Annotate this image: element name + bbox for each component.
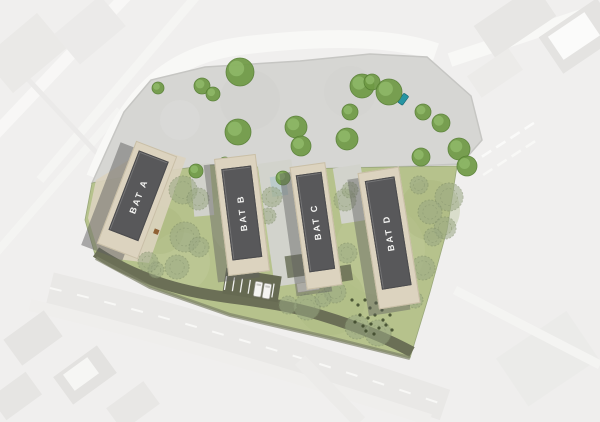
sketch-tree-icon (165, 255, 189, 279)
tree-icon (287, 118, 299, 130)
shrub-icon (356, 303, 359, 306)
sketch-tree-icon (138, 252, 158, 272)
building-label: BAT A (127, 177, 149, 215)
tree-icon (338, 130, 350, 142)
tree-icon (190, 165, 198, 173)
sketch-tree-icon (342, 182, 358, 198)
sketch-tree-icon (279, 296, 297, 314)
shrub-icon (363, 298, 366, 301)
shrub-icon (372, 332, 375, 335)
tree-icon (344, 106, 353, 115)
shrub-icon (390, 328, 393, 331)
building-label: BAT B (235, 194, 249, 232)
shrub-icon (361, 324, 364, 327)
shrub-icon (369, 322, 372, 325)
shrub-icon (377, 326, 380, 329)
shrub-icon (364, 329, 367, 332)
shrub-icon (368, 306, 371, 309)
shrub-icon (381, 318, 384, 321)
tree-icon (196, 80, 205, 89)
shrub-icon (388, 313, 391, 316)
tree-icon (153, 83, 160, 90)
tree-icon (459, 158, 470, 169)
tree-icon (434, 116, 444, 126)
building-label: BAT D (380, 214, 396, 252)
shrub-icon (350, 298, 353, 301)
tree-icon (228, 122, 242, 136)
site-plan-canvas: BAT A BAT B BAT C BAT D (0, 0, 600, 422)
tree-icon (352, 76, 365, 89)
building-label: BAT C (308, 203, 323, 241)
sketch-tree-icon (315, 291, 331, 307)
sketch-tree-icon (424, 228, 442, 246)
shrub-icon (384, 323, 387, 326)
tree-icon (366, 76, 375, 85)
sketch-tree-icon (262, 187, 282, 207)
shrub-icon (358, 313, 361, 316)
tree-icon (450, 140, 462, 152)
sketch-tree-icon (189, 237, 209, 257)
tree-icon (414, 150, 424, 160)
shrub-icon (366, 316, 369, 319)
tree-icon (379, 82, 393, 96)
tree-icon (417, 106, 426, 115)
tree-icon (293, 138, 304, 149)
shrub-icon (373, 313, 376, 316)
sketch-tree-icon (410, 176, 428, 194)
shrub-icon (353, 320, 356, 323)
tree-icon (277, 172, 285, 180)
sketch-tree-icon (337, 243, 357, 263)
tree-icon (229, 61, 244, 76)
tree-icon (207, 88, 215, 96)
building-bat-b-roof: BAT B (221, 166, 262, 261)
sketch-tree-icon (187, 188, 209, 210)
